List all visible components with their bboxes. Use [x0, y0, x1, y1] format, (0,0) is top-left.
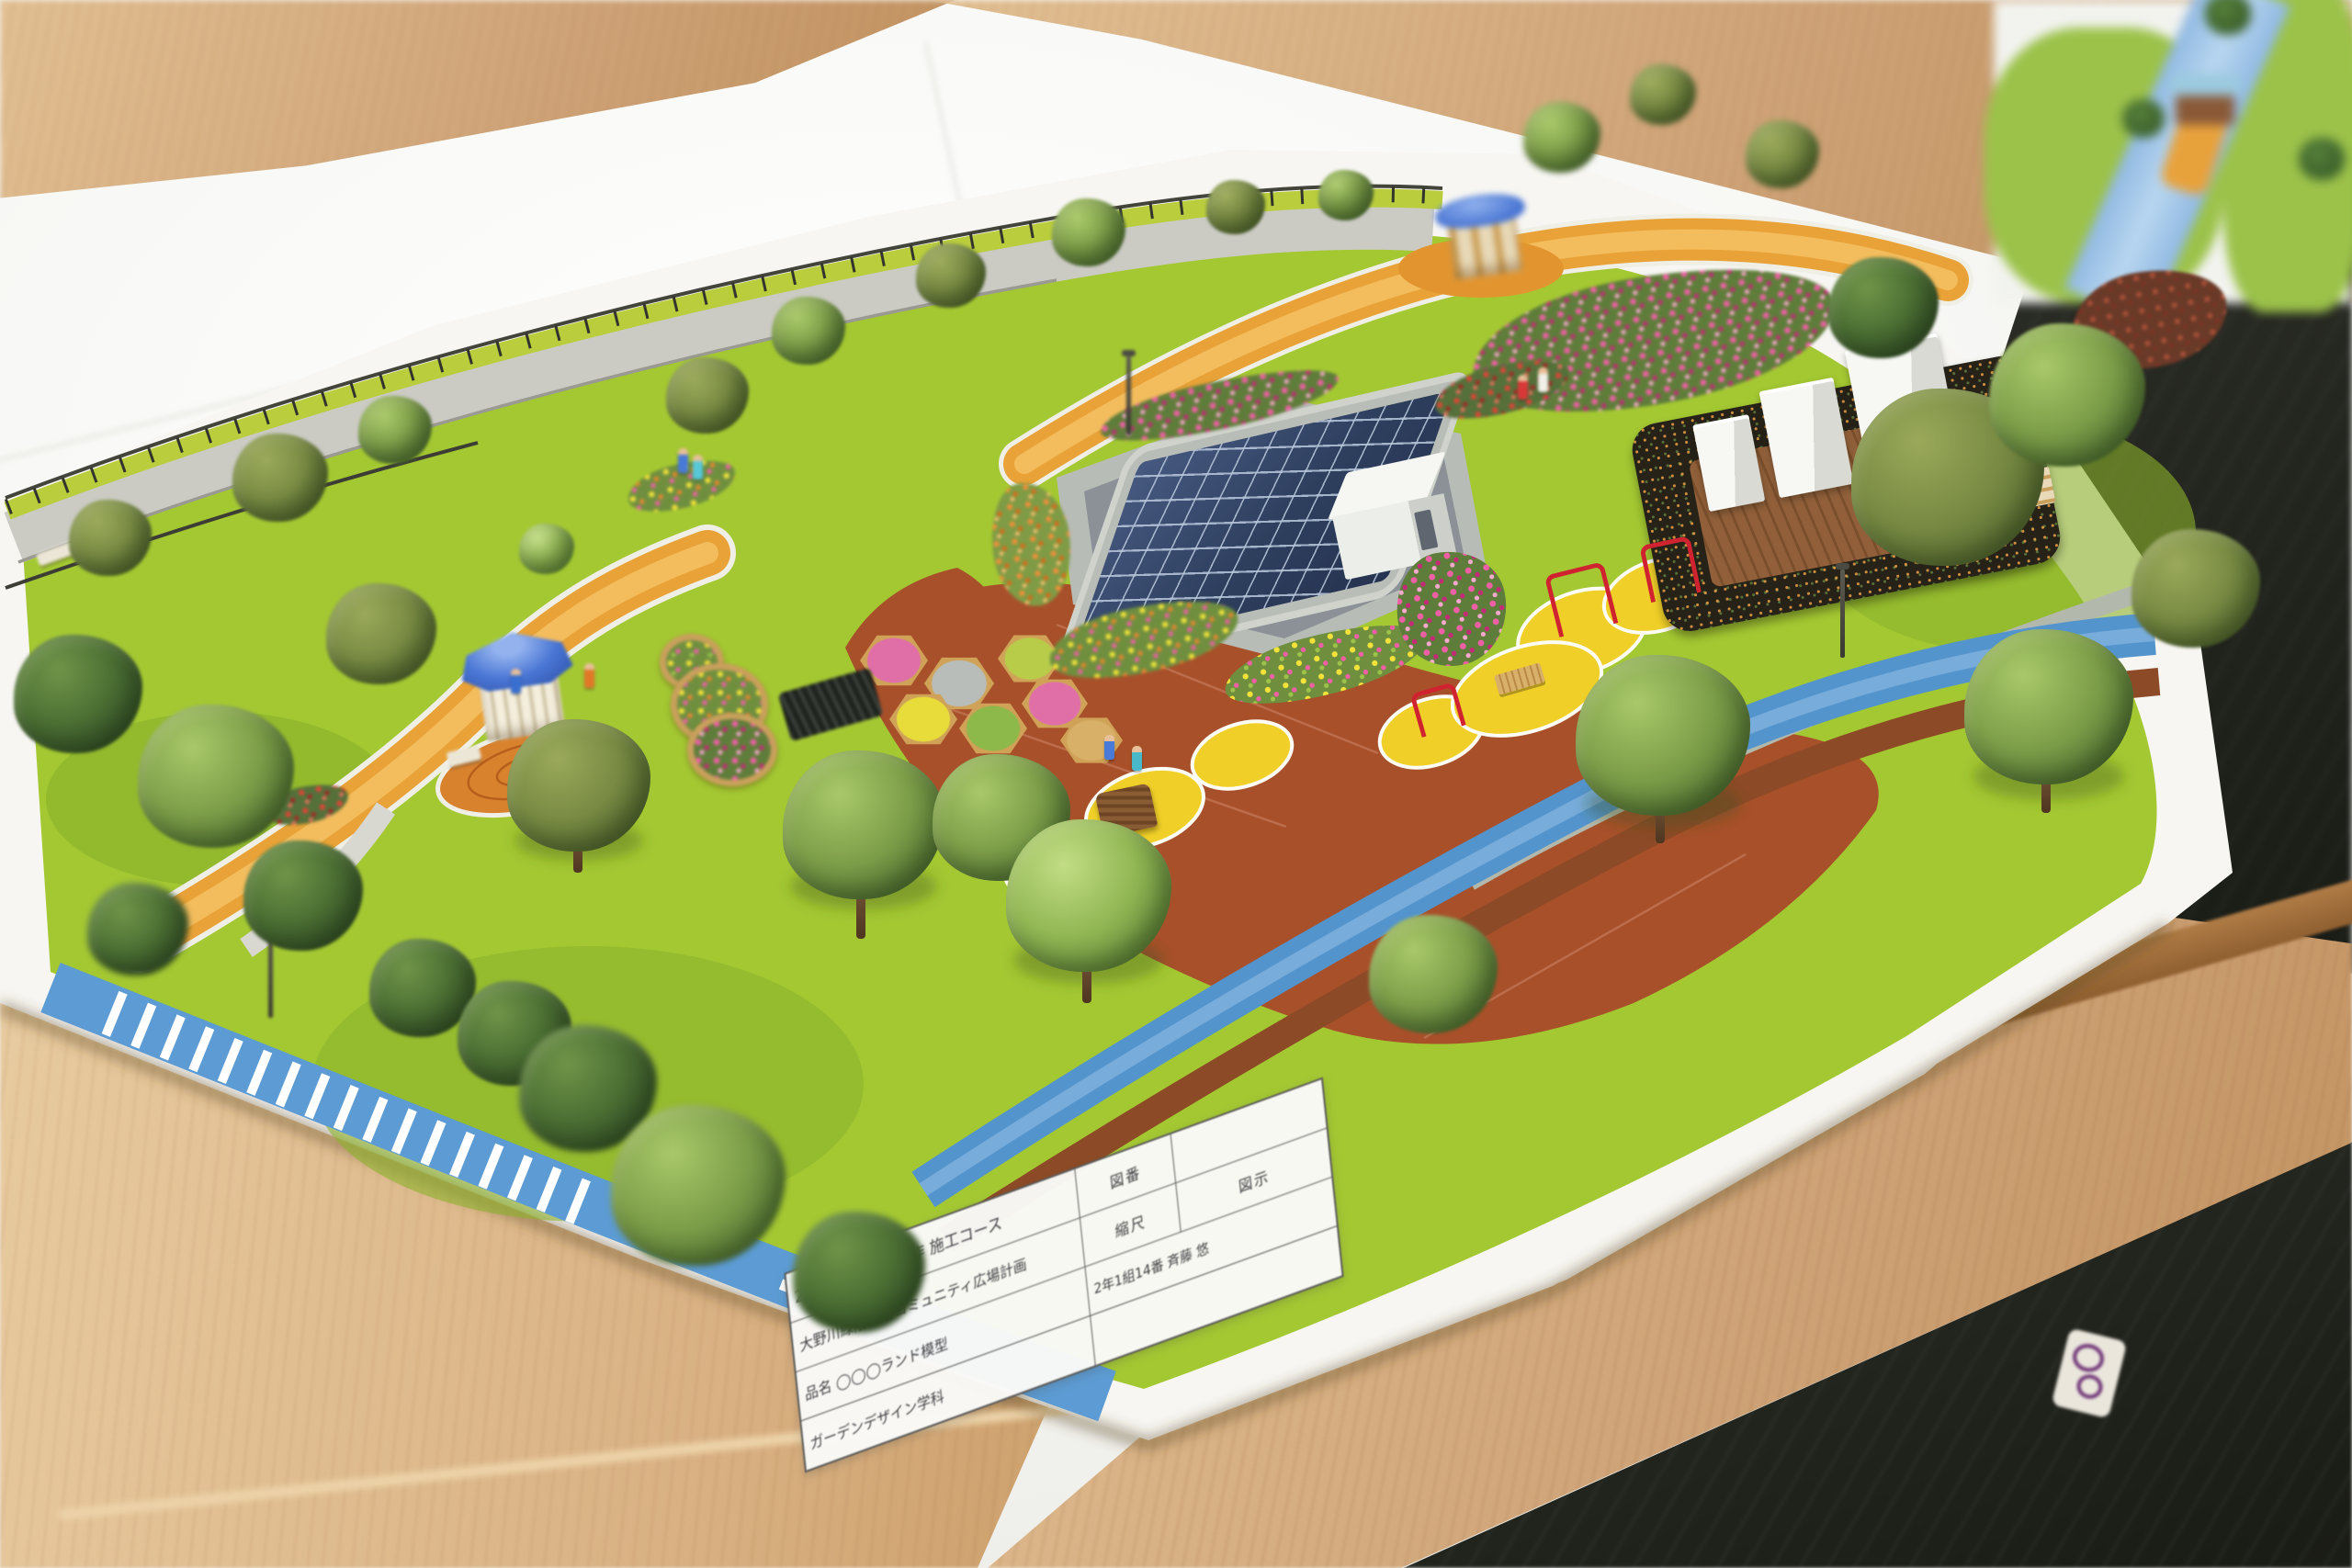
figure — [1538, 367, 1548, 392]
figure — [511, 669, 521, 694]
lamp-head — [1836, 563, 1849, 570]
figure — [693, 455, 703, 479]
figure — [1132, 746, 1142, 771]
figure — [1518, 375, 1528, 400]
figure — [584, 663, 594, 688]
doodle-circle — [2075, 1372, 2105, 1402]
street-lamp — [1840, 570, 1845, 658]
figure — [678, 448, 688, 473]
pergola — [1428, 188, 1540, 288]
lamp-head — [1122, 350, 1136, 356]
figure — [1104, 735, 1114, 760]
doodle-circle — [2070, 1341, 2107, 1375]
street-lamp — [1126, 356, 1131, 435]
tb-item-label: 品名 — [804, 1374, 833, 1404]
round-planter — [687, 713, 777, 786]
photo-scene: 2021年度 卒業制作 施工コース 図番 大野川緑陰道路コミュニティ広場計画 縮… — [0, 0, 2352, 1568]
